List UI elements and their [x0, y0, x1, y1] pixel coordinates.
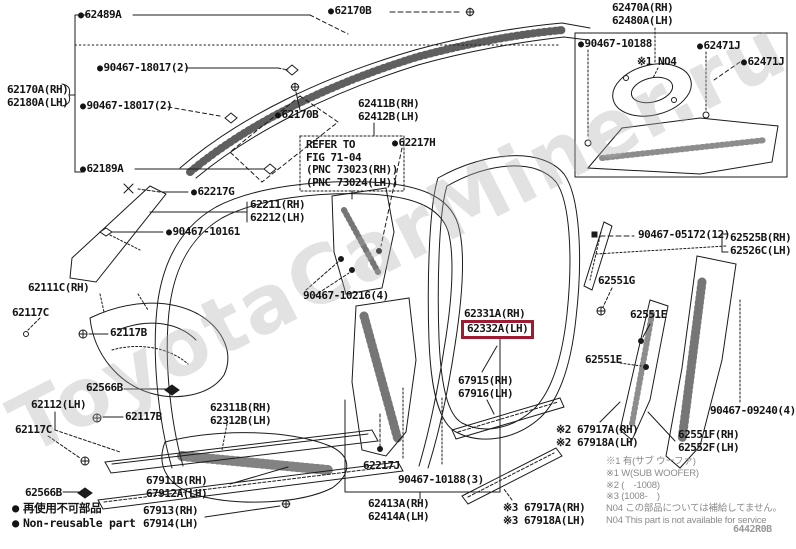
part-label-62117c-1[interactable]: 62117C [12, 307, 49, 320]
part-label-62170b-2[interactable]: ●62170B [275, 109, 318, 123]
footnote-line: ※3 (1008- ) [606, 491, 782, 503]
part-label-90467-09240[interactable]: 90467-09240(4) [710, 405, 796, 418]
part-label-line: ●90467-18017(2) [80, 100, 172, 114]
part-number-text: 62525B(RH) [730, 231, 791, 244]
part-label-refer-note: REFER TOFIG 71-04(PNC 73023(RH))(PNC 730… [306, 139, 398, 189]
part-label-line: ●90467-10161 [166, 226, 240, 240]
non-reusable-dot-icon: ● [97, 63, 103, 74]
footnote-line: ※2 ( -1008) [606, 480, 782, 492]
part-label-line: ●62471J [741, 56, 784, 70]
part-label-62566b-1[interactable]: 62566B [86, 382, 123, 395]
part-number-text: 90467-18017(2) [87, 99, 173, 112]
part-number-text: ※2 67917A(RH) [556, 423, 638, 436]
legend-line-jp: ●再使用不可部品 [12, 501, 136, 516]
part-label-62117b-1[interactable]: 62117B [110, 327, 147, 340]
part-label-line: 62526C(LH) [730, 245, 791, 258]
part-label-line: 62480A(LH) [612, 15, 673, 28]
footnote-line: ※1 有(サブ ウーファ) [606, 456, 782, 468]
part-number-text: (PNC 73023(RH)) [306, 163, 398, 176]
part-label-62217h[interactable]: ●62217H [392, 137, 435, 151]
part-number-text: 67912A(LH) [146, 487, 207, 500]
part-label-line: ●62189A [80, 163, 123, 177]
non-reusable-dot-icon: ● [697, 41, 703, 52]
part-number-text: 67914(LH) [143, 517, 198, 530]
part-label-67917a-67918a-n2[interactable]: ※2 67917A(RH)※2 67918A(LH) [556, 424, 638, 449]
part-label-line: 62117B [110, 327, 147, 340]
part-label-62311b-62312b[interactable]: 62311B(RH)62312B(LH) [210, 402, 271, 427]
part-label-line: 90467-10188(3) [398, 474, 484, 487]
part-number-text: 62117B [125, 410, 162, 423]
part-number-text: 62411B(RH) [358, 97, 419, 110]
non-reusable-legend: ●再使用不可部品 ●Non-reusable part [12, 501, 136, 531]
part-number-text: 62170B [335, 4, 372, 17]
part-label-line: 62180A(LH) [7, 97, 68, 110]
part-number-text: 62332A(LH) [467, 322, 528, 335]
part-number-text: 62412B(LH) [358, 110, 419, 123]
footnotes-block: ※1 有(サブ ウーファ)※1 W(SUB WOOFER)※2 ( -1008)… [606, 456, 782, 527]
part-label-62331a[interactable]: 62331A(RH) [464, 308, 525, 321]
part-label-line: 62551E [585, 354, 622, 367]
part-label-line: ●90467-10188 [578, 38, 652, 52]
part-number-text: 62111C(RH) [28, 281, 89, 294]
legend-text-jp: 再使用不可部品 [23, 501, 101, 515]
part-number-text: REFER TO [306, 138, 355, 151]
part-label-line: 90467-05172(12) [638, 229, 730, 242]
part-number-text: 62471J [704, 39, 741, 52]
part-number-text: 62312B(LH) [210, 414, 271, 427]
part-label-line: 62566B [86, 382, 123, 395]
part-label-line: ●62170B [328, 5, 371, 19]
part-number-text: 62551G [598, 274, 635, 287]
part-label-line: 62217J [363, 460, 400, 473]
part-label-line: 62332A(LH) [467, 323, 528, 336]
part-label-90467-05172[interactable]: 90467-05172(12) [638, 229, 730, 242]
non-reusable-dot-icon: ● [80, 101, 86, 112]
footnote-line: ※1 W(SUB WOOFER) [606, 468, 782, 480]
part-label-62411b-62412b[interactable]: 62411B(RH)62412B(LH) [358, 98, 419, 123]
part-label-67917a-67918a-n3[interactable]: ※3 67917A(RH)※3 67918A(LH) [503, 502, 585, 527]
parts-catalog-page: { "page": { "watermark": "ToyotaCarMiner… [0, 0, 796, 549]
part-label-line: 90467-10216(4) [303, 290, 389, 303]
part-label-62471j-outer[interactable]: ●62471J [741, 56, 784, 70]
part-label-line: 62111C(RH) [28, 282, 89, 295]
part-label-line: 62412B(LH) [358, 111, 419, 124]
part-label-62489a[interactable]: ●62489A [78, 9, 121, 23]
part-label-62211-62212[interactable]: 62211(RH)62212(LH) [250, 199, 305, 224]
part-label-line: 62212(LH) [250, 212, 305, 225]
non-reusable-dot-icon: ● [741, 57, 747, 68]
part-number-text: ※2 67918A(LH) [556, 436, 638, 449]
part-number-text: 90467-18017(2) [104, 61, 190, 74]
part-number-text: 62551E [630, 308, 667, 321]
part-number-text: 62217H [399, 136, 436, 149]
part-number-text: 62470A(RH) [612, 1, 673, 14]
part-number-text: 90467-09240(4) [710, 404, 796, 417]
non-reusable-dot-icon: ● [12, 501, 19, 515]
part-label-90467-10188-3[interactable]: 90467-10188(3) [398, 474, 484, 487]
non-reusable-dot-icon: ● [275, 110, 281, 121]
part-number-text: 62566B [25, 486, 62, 499]
part-label-line: 62112(LH) [31, 399, 86, 412]
part-number-text: ※3 67918A(LH) [503, 514, 585, 527]
part-label-62471j-inner[interactable]: ●62471J [697, 40, 740, 54]
part-number-text: 67915(RH) [458, 374, 513, 387]
part-label-62217g[interactable]: ●62217G [191, 186, 234, 200]
part-label-line: ●62217G [191, 186, 234, 200]
non-reusable-dot-icon: ● [80, 164, 86, 175]
part-number-text: 62311B(RH) [210, 401, 271, 414]
part-number-text: 62211(RH) [250, 198, 305, 211]
part-label-62551g-1[interactable]: 62551G [598, 275, 635, 288]
part-number-text: ※1 NO4 [637, 55, 676, 68]
part-number-text: FIG 71-04 [306, 151, 361, 164]
non-reusable-dot-icon: ● [166, 227, 172, 238]
part-label-line: 62551G [598, 275, 635, 288]
part-label-62413a-62414a[interactable]: 62413A(RH)62414A(LH) [368, 498, 429, 523]
part-label-line: 67912A(LH) [146, 488, 207, 501]
part-label-62117b-2[interactable]: 62117B [125, 411, 162, 424]
part-number-text: 67913(RH) [143, 504, 198, 517]
part-number-text: 62566B [86, 381, 123, 394]
part-number-text: 62117B [110, 326, 147, 339]
footnote-line: N04 この部品については補給してません。 [606, 503, 782, 515]
part-number-text: (PNC 73024(LH)) [306, 176, 398, 189]
part-label-line: 67916(LH) [458, 388, 513, 401]
part-label-90467-10216[interactable]: 90467-10216(4) [303, 290, 389, 303]
part-number-text: 90467-10188(3) [398, 473, 484, 486]
part-label-line: 62312B(LH) [210, 415, 271, 428]
part-label-line: ※1 NO4 [637, 56, 676, 69]
part-label-line: ●62217H [392, 137, 435, 151]
legend-text-en: Non-reusable part [23, 516, 136, 530]
part-number-text: 62489A [85, 8, 122, 21]
part-label-line: 62331A(RH) [464, 308, 525, 321]
part-label-62189a[interactable]: ●62189A [80, 163, 123, 177]
part-label-62217j[interactable]: 62217J [363, 460, 400, 473]
part-label-67915-67916[interactable]: 67915(RH)67916(LH) [458, 375, 513, 400]
part-label-line: 62414A(LH) [368, 511, 429, 524]
part-number-text: 67911B(RH) [146, 474, 207, 487]
part-number-text: 90467-10188 [585, 37, 652, 50]
non-reusable-dot-icon: ● [191, 187, 197, 198]
part-number-text: 62117C [15, 423, 52, 436]
part-number-text: 62552F(LH) [678, 441, 739, 454]
part-number-text: 62551F(RH) [678, 428, 739, 441]
part-number-text: ※3 67917A(RH) [503, 501, 585, 514]
part-number-text: 67916(LH) [458, 387, 513, 400]
part-label-62470a-62480a[interactable]: 62470A(RH)62480A(LH) [612, 2, 673, 27]
part-number-text: 62189A [87, 162, 124, 175]
non-reusable-dot-icon: ● [328, 6, 334, 17]
part-label-line: 62117B [125, 411, 162, 424]
part-label-62112[interactable]: 62112(LH) [31, 399, 86, 412]
part-number-text: 62480A(LH) [612, 14, 673, 27]
non-reusable-dot-icon: ● [578, 39, 584, 50]
part-number-text: 62112(LH) [31, 398, 86, 411]
part-number-text: 62117C [12, 306, 49, 319]
part-label-line: ●90467-18017(2) [97, 62, 189, 76]
part-label-line: ※3 67918A(LH) [503, 515, 585, 528]
part-label-62551f-62552f[interactable]: 62551F(RH)62552F(LH) [678, 429, 739, 454]
part-label-line: ※2 67918A(LH) [556, 437, 638, 450]
part-label-90467-18017-2[interactable]: ●90467-18017(2) [80, 100, 172, 114]
figure-code: 6442R0B [733, 524, 772, 535]
part-number-text: 62331A(RH) [464, 307, 525, 320]
non-reusable-dot-icon: ● [78, 10, 84, 21]
part-number-text: 90467-10161 [173, 225, 240, 238]
part-label-62170a-62180a[interactable]: 62170A(RH)62180A(LH) [7, 84, 68, 109]
part-label-90467-18017-1[interactable]: ●90467-18017(2) [97, 62, 189, 76]
part-number-text: 62551E [585, 353, 622, 366]
part-label-62332a[interactable]: 62332A(LH) [461, 320, 534, 339]
part-label-line: ●62170B [275, 109, 318, 123]
part-number-text: 62217G [198, 185, 235, 198]
part-number-text: 90467-10216(4) [303, 289, 389, 302]
part-label-62117c-2[interactable]: 62117C [15, 424, 52, 437]
part-number-text: 62471J [748, 55, 785, 68]
part-label-62551e-1[interactable]: 62551E [630, 309, 667, 322]
non-reusable-dot-icon: ● [12, 516, 19, 530]
part-label-62551e-2[interactable]: 62551E [585, 354, 622, 367]
part-label-line: (PNC 73024(LH)) [306, 177, 398, 190]
part-label-line: 62117C [15, 424, 52, 437]
part-number-text: 62170A(RH) [7, 83, 68, 96]
part-label-line: 62551E [630, 309, 667, 322]
part-label-90467-10188[interactable]: ●90467-10188 [578, 38, 652, 52]
part-label-62170b-top[interactable]: ●62170B [328, 5, 371, 19]
part-label-line: 62566B [25, 487, 62, 500]
part-number-text: 62413A(RH) [368, 497, 429, 510]
part-label-62566b-2[interactable]: 62566B [25, 487, 62, 500]
part-label-62111c[interactable]: 62111C(RH) [28, 282, 89, 295]
part-label-line: 62552F(LH) [678, 442, 739, 455]
part-number-text: 62180A(LH) [7, 96, 68, 109]
part-label-line: 90467-09240(4) [710, 405, 796, 418]
part-label-90467-10161[interactable]: ●90467-10161 [166, 226, 240, 240]
legend-line-en: ●Non-reusable part [12, 516, 136, 531]
part-label-no4-mark: ※1 NO4 [637, 56, 676, 69]
part-label-line: 62117C [12, 307, 49, 320]
part-number-text: 62526C(LH) [730, 244, 791, 257]
part-label-62525b-62526c[interactable]: 62525B(RH)62526C(LH) [730, 232, 791, 257]
part-label-67911b-67912a[interactable]: 67911B(RH)67912A(LH) [146, 475, 207, 500]
part-label-line: ●62489A [78, 9, 121, 23]
part-label-67913-67914[interactable]: 67913(RH)67914(LH) [143, 505, 198, 530]
part-label-line: 67914(LH) [143, 518, 198, 531]
part-number-text: 62170B [282, 108, 319, 121]
part-number-text: 62212(LH) [250, 211, 305, 224]
part-number-text: 62414A(LH) [368, 510, 429, 523]
part-number-text: 62217J [363, 459, 400, 472]
part-number-text: 90467-05172(12) [638, 228, 730, 241]
part-label-line: ●62471J [697, 40, 740, 54]
